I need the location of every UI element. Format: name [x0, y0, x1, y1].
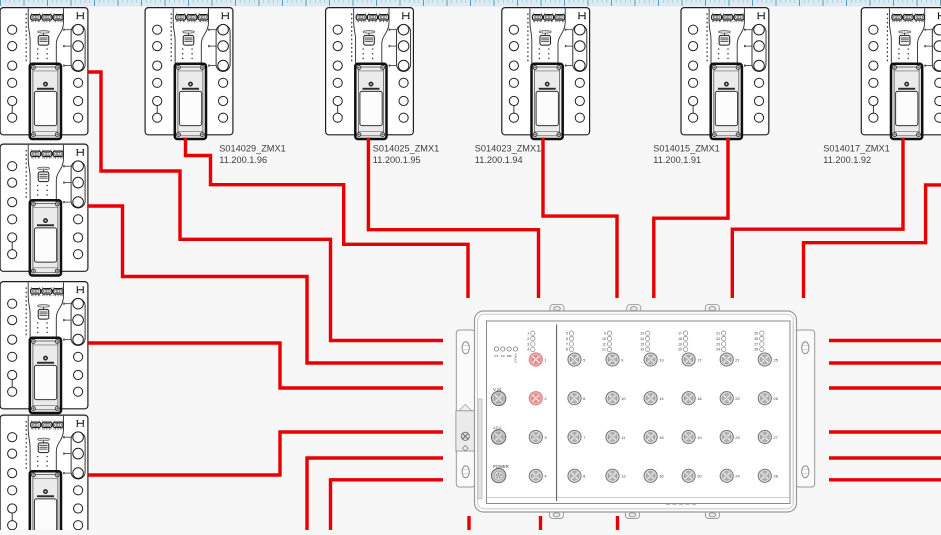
- svg-text:27: 27: [773, 435, 778, 440]
- svg-text:17: 17: [697, 357, 702, 362]
- svg-text:7: 7: [566, 342, 568, 346]
- svg-text:11.200.1.91: 11.200.1.91: [653, 155, 701, 165]
- svg-text:18: 18: [697, 396, 702, 401]
- svg-text:S014025_ZMX1: S014025_ZMX1: [373, 143, 439, 153]
- svg-text:25: 25: [773, 357, 778, 362]
- svg-text:26: 26: [773, 396, 778, 401]
- svg-text:23: 23: [735, 435, 740, 440]
- svg-text:16: 16: [659, 474, 664, 479]
- svg-text:16: 16: [640, 348, 644, 352]
- svg-text:21: 21: [716, 332, 720, 336]
- svg-text:RM: RM: [507, 354, 512, 358]
- svg-text:12: 12: [602, 348, 606, 352]
- svg-text:6: 6: [566, 337, 568, 341]
- svg-text:11.200.1.95: 11.200.1.95: [373, 155, 421, 165]
- svg-text:13: 13: [640, 332, 644, 336]
- svg-text:2: 2: [527, 337, 529, 341]
- svg-text:11.200.1.94: 11.200.1.94: [475, 155, 523, 165]
- svg-text:11: 11: [602, 342, 606, 346]
- svg-text:P1: P1: [495, 354, 499, 358]
- svg-text:8: 8: [566, 348, 568, 352]
- svg-text:17: 17: [678, 332, 682, 336]
- svg-text:19: 19: [697, 435, 702, 440]
- svg-text:S014029_ZMX1: S014029_ZMX1: [219, 143, 285, 153]
- svg-text:15: 15: [659, 435, 664, 440]
- svg-text:24: 24: [735, 474, 740, 479]
- svg-text:11.200.1.96: 11.200.1.96: [219, 155, 267, 165]
- svg-text:3: 3: [527, 342, 529, 346]
- svg-text:26: 26: [754, 337, 758, 341]
- svg-text:13: 13: [659, 357, 664, 362]
- svg-text:22: 22: [716, 337, 720, 341]
- svg-text:10: 10: [621, 396, 626, 401]
- svg-text:12: 12: [621, 474, 626, 479]
- svg-text:23: 23: [716, 342, 720, 346]
- svg-text:28: 28: [754, 348, 758, 352]
- svg-text:S014015_ZMX1: S014015_ZMX1: [653, 143, 719, 153]
- svg-text:18: 18: [678, 337, 682, 341]
- svg-text:S014017_ZMX1: S014017_ZMX1: [823, 143, 889, 153]
- svg-text:20: 20: [697, 474, 702, 479]
- svg-text:15: 15: [640, 342, 644, 346]
- svg-text:28: 28: [773, 474, 778, 479]
- svg-text:9: 9: [604, 332, 606, 336]
- svg-text:10: 10: [602, 337, 606, 341]
- svg-text:1: 1: [527, 332, 529, 336]
- svg-text:11.200.1.92: 11.200.1.92: [823, 155, 871, 165]
- svg-text:FAULT: FAULT: [513, 354, 517, 364]
- svg-text:20: 20: [678, 348, 682, 352]
- svg-text:5: 5: [566, 332, 568, 336]
- svg-text:4: 4: [527, 348, 529, 352]
- svg-text:19: 19: [678, 342, 682, 346]
- svg-text:24: 24: [716, 348, 720, 352]
- svg-text:S014023_ZMX1: S014023_ZMX1: [475, 143, 541, 153]
- svg-text:P2: P2: [501, 354, 505, 358]
- svg-text:27: 27: [754, 342, 758, 346]
- svg-text:21: 21: [735, 357, 740, 362]
- svg-text:14: 14: [659, 396, 664, 401]
- svg-text:22: 22: [735, 396, 740, 401]
- svg-text:25: 25: [754, 332, 758, 336]
- svg-text:14: 14: [640, 337, 644, 341]
